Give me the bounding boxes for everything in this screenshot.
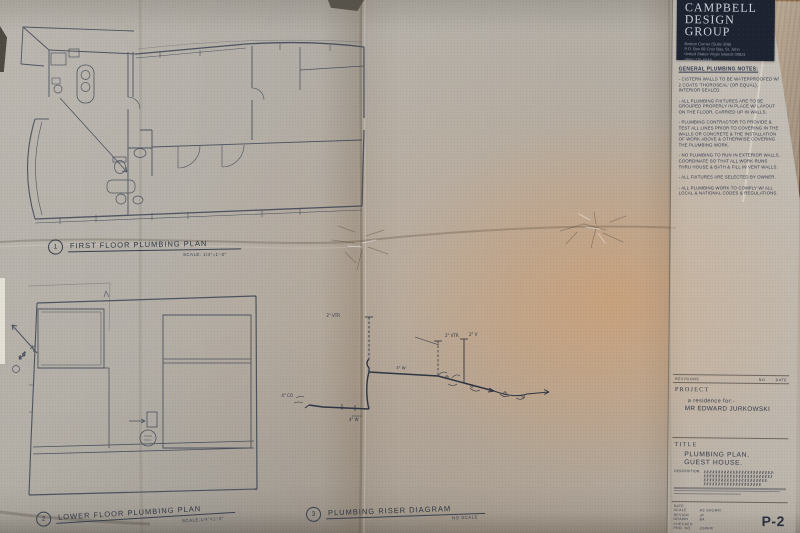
riser-annotation: 2" VTR: [445, 333, 459, 338]
fold-creases: [0, 0, 676, 533]
sheet-title-line2: GUEST HOUSE.: [684, 459, 786, 467]
handwritten-description: [703, 469, 786, 487]
info-value: BA: [700, 517, 705, 521]
firm-logo-box: CAMPBELL DESIGN GROUP Boston Corner (Sui…: [676, 0, 775, 61]
riser-annotation: 4" W: [349, 417, 359, 422]
title-box: TITLE PLUMBING PLAN. GUEST HOUSE. DESCRI…: [672, 438, 789, 503]
plan3-scale: NO SCALE: [452, 515, 478, 521]
plan2-dim-annotation: 4'-0": [17, 351, 28, 361]
description-label: DESCRIPTION:: [674, 469, 701, 486]
revisions-date-label: DATE: [776, 378, 787, 382]
title-block-column: CAMPBELL DESIGN GROUP Boston Corner (Sui…: [666, 0, 800, 533]
riser-annotation: 4" CO: [281, 393, 293, 398]
project-label: PROJECT: [675, 386, 787, 394]
plan2-number-bubble: 2: [36, 511, 52, 527]
fine-print-line: [674, 493, 741, 495]
project-line2: MR EDWARD JURKOWSKI: [685, 405, 787, 413]
project-line1: a residence for:-: [688, 398, 787, 405]
riser-annotation: 2" VTR: [326, 313, 340, 318]
firm-address-line: (809) 776-6548: [684, 57, 767, 63]
firm-name-line: GROUP: [685, 26, 768, 39]
riser-annotation: 2" V: [469, 332, 478, 337]
note-item: - ALL FIXTURES ARE SELECTED BY OWNER.: [679, 175, 781, 181]
info-label: PRO. NO.: [673, 526, 699, 531]
info-value: JURKW: [699, 526, 713, 531]
revisions-no-label: NO.: [759, 377, 767, 381]
sheet-number: P-2: [761, 513, 784, 529]
plumbing-riser-drawing: 2" VTR 2" VTR 2" V 3" W 4" CO 4" W: [281, 313, 549, 422]
note-item: - NO PLUMBING TO RUN IN EXTERIOR WALLS. …: [679, 153, 781, 170]
first-floor-plan-drawing: [21, 27, 364, 224]
wrinkles: [332, 212, 626, 270]
plan1-title: FIRST FLOOR PLUMBING PLAN: [68, 238, 242, 252]
note-item: - PLUMBING CONTRACTOR TO PROVIDE & TEST …: [679, 120, 781, 148]
sheet-info-box: DATE SCALEAS SHOWN DESIGNJF DRAWNBA CHEC…: [671, 502, 787, 533]
riser-annotation: 3" W: [396, 365, 406, 370]
general-plumbing-notes: GENERAL PLUMBING NOTES: - CISTERN WALLS …: [679, 67, 781, 202]
revisions-label: REVISIONS: [675, 377, 699, 381]
project-box: PROJECT a residence for:- MR EDWARD JURK…: [672, 383, 789, 439]
note-item: - ALL PLUMBING WORK TO COMPLY W/ ALL LOC…: [679, 185, 781, 196]
lower-floor-plan-drawing: 4'-0": [12, 283, 257, 495]
plan1-number-bubble: 1: [48, 239, 63, 254]
note-item: - CISTERN WALLS TO BE WATERPROOFED W/ 2 …: [679, 77, 781, 94]
plan3-number-bubble: 3: [306, 507, 322, 523]
plan1-scale: SCALE: 1/4"=1'-0": [183, 252, 227, 257]
photographed-blueprint-sheet: 4'-0": [0, 0, 800, 533]
title-label: TITLE: [674, 441, 786, 449]
sheet-title-line1: PLUMBING PLAN.: [684, 451, 786, 459]
notes-title: GENERAL PLUMBING NOTES:: [679, 67, 781, 73]
note-item: - ALL PLUMBING FIXTURES ARE TO BE GROUPE…: [679, 98, 781, 115]
